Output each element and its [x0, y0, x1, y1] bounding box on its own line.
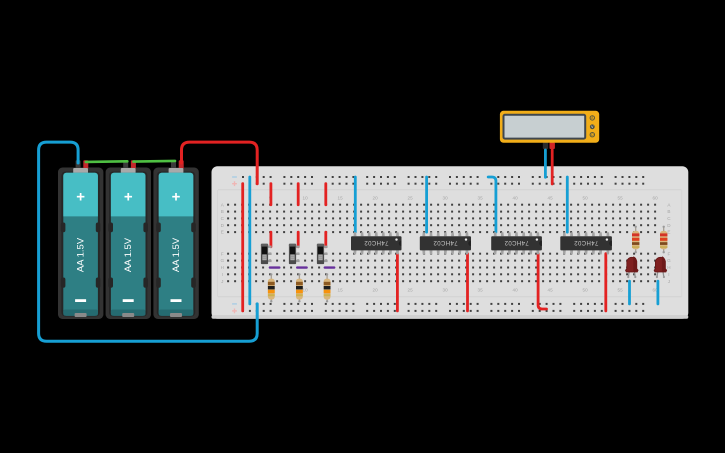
- svg-text:30: 30: [443, 287, 449, 292]
- svg-text:20: 20: [373, 195, 379, 200]
- svg-text:E: E: [667, 230, 670, 235]
- svg-text:10: 10: [303, 195, 309, 200]
- svg-text:G: G: [221, 258, 225, 263]
- svg-text:45: 45: [548, 195, 554, 200]
- svg-text:15: 15: [338, 195, 344, 200]
- svg-text:55: 55: [618, 287, 624, 292]
- svg-text:74HC02: 74HC02: [504, 239, 529, 246]
- svg-text:I: I: [668, 272, 669, 277]
- svg-text:30: 30: [443, 195, 449, 200]
- svg-text:45: 45: [548, 287, 554, 292]
- svg-text:H: H: [667, 265, 670, 270]
- svg-text:AA 1.5V: AA 1.5V: [123, 237, 134, 272]
- svg-text:F: F: [667, 251, 670, 256]
- svg-text:AA 1.5V: AA 1.5V: [171, 237, 182, 272]
- svg-text:20: 20: [373, 287, 379, 292]
- svg-text:B: B: [667, 209, 670, 214]
- svg-text:J: J: [221, 279, 223, 284]
- svg-text:B: B: [221, 209, 224, 214]
- svg-text:Ω: Ω: [591, 133, 594, 137]
- svg-text:74HC02: 74HC02: [364, 239, 389, 246]
- svg-text:25: 25: [408, 195, 414, 200]
- svg-text:55: 55: [618, 195, 624, 200]
- svg-text:15: 15: [338, 287, 344, 292]
- svg-text:50: 50: [583, 287, 589, 292]
- svg-text:25: 25: [408, 287, 414, 292]
- svg-text:+: +: [124, 189, 133, 206]
- svg-text:40: 40: [513, 287, 519, 292]
- svg-text:H: H: [221, 265, 224, 270]
- svg-text:AA 1.5V: AA 1.5V: [76, 237, 87, 272]
- svg-text:+: +: [76, 189, 85, 206]
- svg-text:+: +: [172, 189, 181, 206]
- svg-text:50: 50: [583, 195, 589, 200]
- svg-text:60: 60: [653, 195, 659, 200]
- svg-text:35: 35: [478, 195, 484, 200]
- svg-text:74HC02: 74HC02: [574, 239, 599, 246]
- svg-text:40: 40: [513, 195, 519, 200]
- svg-text:J: J: [668, 279, 670, 284]
- svg-text:G: G: [667, 258, 671, 263]
- svg-text:35: 35: [478, 287, 484, 292]
- svg-text:10: 10: [303, 287, 309, 292]
- svg-text:I: I: [222, 272, 223, 277]
- svg-text:F: F: [221, 251, 224, 256]
- svg-text:E: E: [221, 230, 224, 235]
- svg-text:74HC02: 74HC02: [433, 239, 458, 246]
